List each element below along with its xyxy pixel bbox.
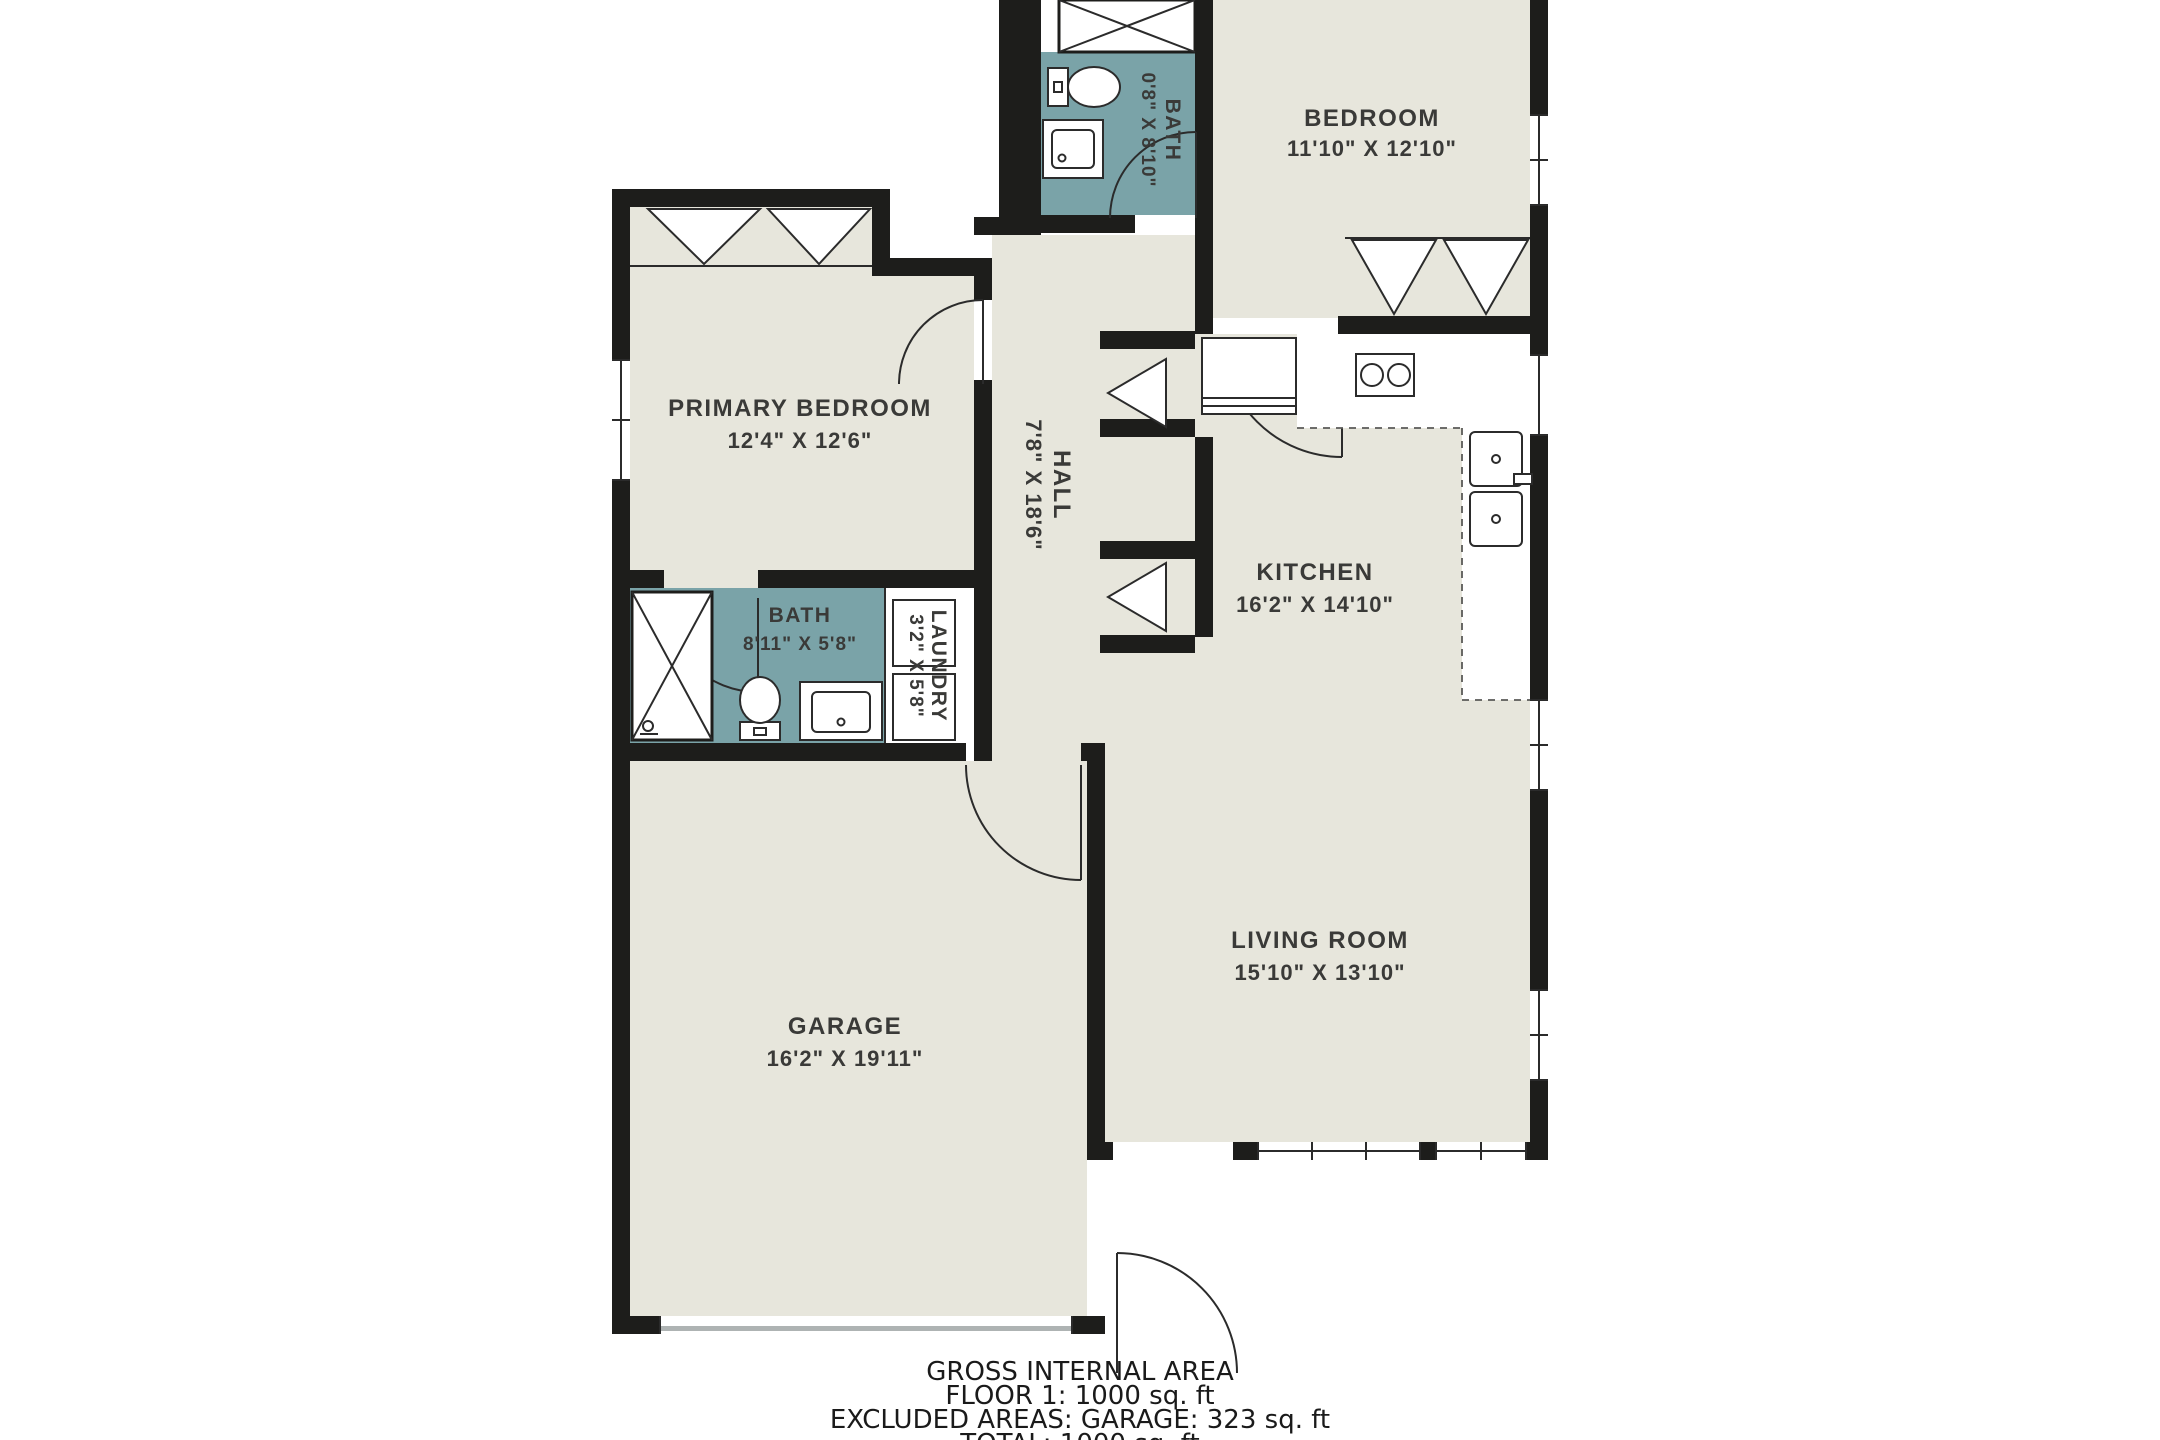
garage-dims: 16'2" X 19'11" — [767, 1046, 924, 1071]
bath-main-label: BATH — [769, 604, 832, 627]
living-room-area — [1105, 657, 1530, 1142]
kitchen-dims: 16'2" X 14'10" — [1236, 592, 1394, 617]
total-area-line: TOTAL: 1000 sq. ft — [959, 1429, 1199, 1440]
kitchen-label: KITCHEN — [1256, 559, 1373, 586]
window — [612, 360, 630, 480]
area-summary: GROSS INTERNAL AREA FLOOR 1: 1000 sq. ft… — [830, 1357, 1330, 1440]
floor-plan-canvas: PRIMARY BEDROOM 12'4" X 12'6" BEDROOM 11… — [0, 0, 2160, 1440]
primary-bedroom-dims: 12'4" X 12'6" — [728, 428, 873, 453]
sink-icon — [800, 682, 882, 740]
toilet-icon — [740, 677, 780, 740]
primary-bedroom-area — [630, 266, 974, 588]
shower-head-icon — [643, 721, 653, 731]
toilet-icon — [1048, 67, 1120, 107]
bath-main-dims: 8'11" X 5'8" — [743, 634, 857, 655]
entry-door-gap — [1113, 1142, 1233, 1160]
door-arc — [1117, 1253, 1237, 1373]
fridge-icon — [1202, 338, 1296, 414]
window — [1530, 355, 1548, 435]
laundry-label: LAUNDRY — [927, 610, 950, 722]
hall-label: HALL — [1048, 450, 1075, 520]
laundry-dims: 3'2" X 5'8" — [905, 614, 926, 718]
window — [1530, 115, 1548, 205]
window — [1258, 1142, 1420, 1160]
bath-upper-dims: 0'8" X 8'10" — [1137, 72, 1158, 187]
hall-dims: 7'8" X 18'6" — [1021, 419, 1046, 550]
bedroom-label: BEDROOM — [1304, 105, 1440, 132]
floor-plan: PRIMARY BEDROOM 12'4" X 12'6" BEDROOM 11… — [0, 0, 2160, 1440]
sink-icon — [1043, 120, 1103, 178]
living-room-label: LIVING ROOM — [1231, 927, 1409, 954]
window — [1436, 1142, 1526, 1160]
bath-upper-label: BATH — [1161, 99, 1184, 162]
bedroom-dims: 11'10" X 12'10" — [1287, 136, 1457, 161]
living-room-dims: 15'10" X 13'10" — [1234, 960, 1405, 985]
primary-bedroom-label: PRIMARY BEDROOM — [668, 395, 932, 422]
window — [1530, 700, 1548, 790]
window — [1530, 990, 1548, 1080]
garage-label: GARAGE — [788, 1013, 902, 1040]
garage-door — [660, 1316, 1072, 1334]
stove-icon — [1356, 354, 1414, 396]
